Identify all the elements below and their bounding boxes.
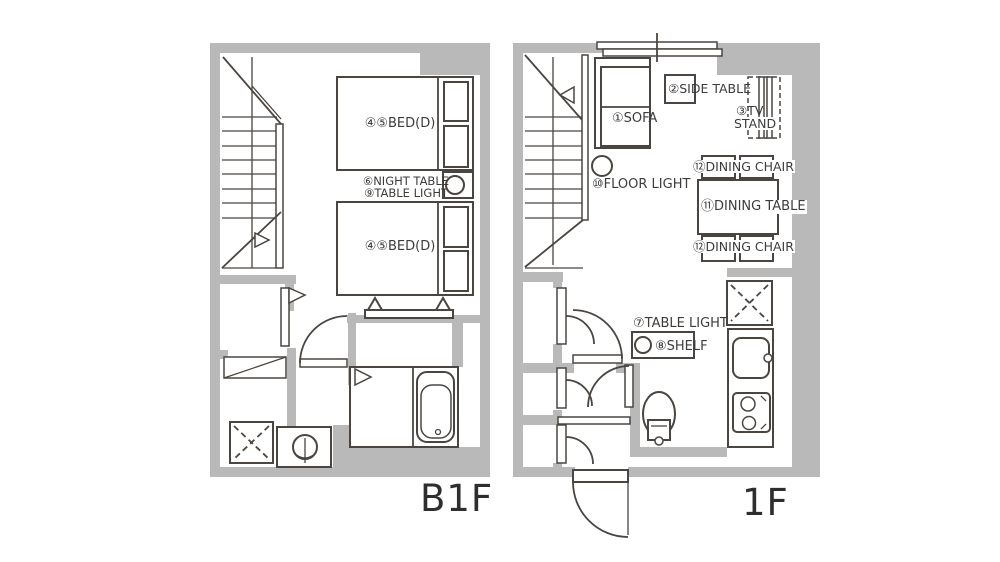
- shelf-label: ⑧SHELF: [655, 340, 708, 354]
- f1-staircase-icon: [525, 55, 588, 268]
- f1-plan: [513, 33, 820, 537]
- f1-open-square-icon: [727, 281, 772, 325]
- floor-plan-page: ④⑤BED(D) ⑥NIGHT TABLE ⑨TABLE LIGHT ④⑤BED…: [0, 0, 1000, 562]
- toilet-icon: [643, 392, 675, 445]
- floor-light-label: ⑩FLOOR LIGHT: [592, 178, 690, 192]
- sofa-label: ①SOFA: [612, 112, 657, 126]
- bed-1-label: ④⑤BED(D): [352, 117, 448, 131]
- b1f-staircase-icon: [222, 57, 283, 268]
- tv-stand-label-line2: STAND: [733, 117, 777, 130]
- washbasin-icon: [277, 427, 331, 467]
- b1f-floor-title: B1F: [420, 480, 493, 519]
- floor-light-icon: [592, 156, 612, 176]
- table-light-label-b1f: ⑨TABLE LIGHT: [352, 187, 448, 199]
- side-table-label: ②SIDE TABLE: [668, 82, 751, 95]
- table-light-label-f1: ⑦TABLE LIGHT: [633, 317, 728, 331]
- b1f-door-icon: [300, 316, 347, 367]
- b1f-open-square-icon: [230, 422, 273, 463]
- f1-floor-title: 1F: [742, 484, 789, 523]
- floor-plan-drawing: [0, 0, 1000, 562]
- f1-door-a-icon: [557, 288, 622, 363]
- table-light-icon: [635, 337, 651, 353]
- dining-table-label: ⑪DINING TABLE: [700, 200, 807, 214]
- dining-chair-bottom-label: ⑫DINING CHAIR: [692, 240, 795, 253]
- b1f-closet-door-icon: [281, 288, 305, 346]
- stove-icon: [733, 393, 770, 432]
- bed-2-label: ④⑤BED(D): [352, 240, 448, 254]
- kitchen-icon: [727, 281, 773, 447]
- b1f-closet-icon: [224, 357, 286, 378]
- sofa-icon: [595, 58, 650, 148]
- entrance-door-icon: [573, 470, 628, 537]
- stair-arrow-icon: [255, 233, 269, 247]
- bathtub-icon: [417, 372, 454, 442]
- sink-icon: [733, 338, 772, 378]
- dining-chair-top-label: ⑫DINING CHAIR: [692, 160, 795, 173]
- luggage-rack-icon: [365, 298, 453, 318]
- b1f-plan: [210, 43, 490, 477]
- bathroom-icon: [350, 367, 458, 447]
- f1-door-c-icon: [557, 417, 630, 464]
- stair-arrow-icon: [560, 87, 574, 103]
